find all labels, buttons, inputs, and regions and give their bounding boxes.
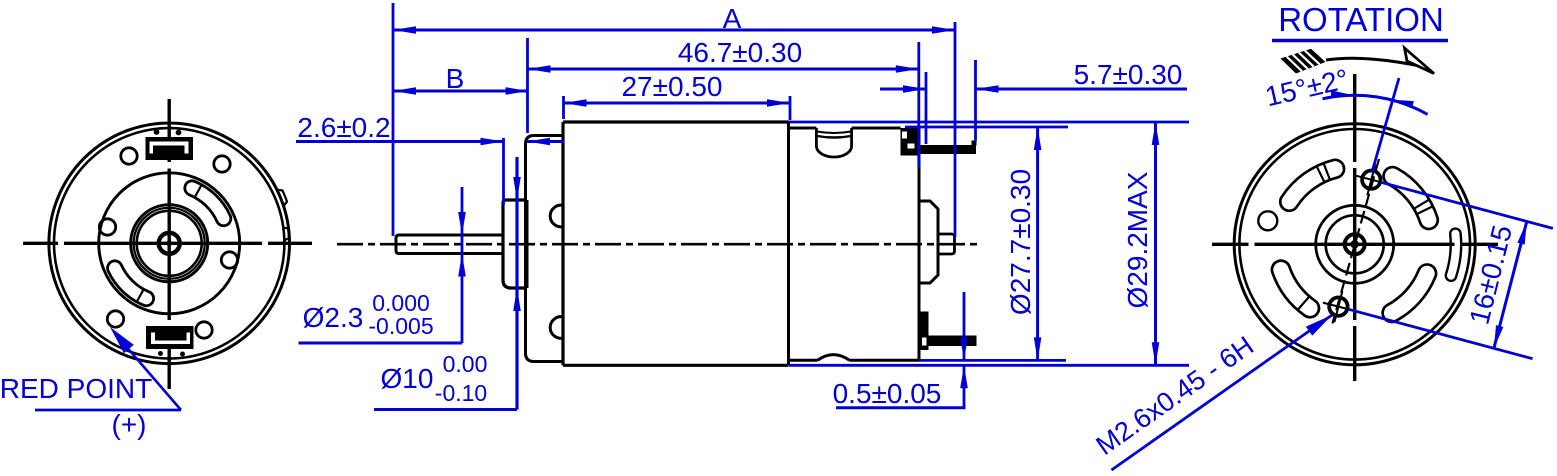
svg-text:Ø10: Ø10	[381, 363, 434, 394]
svg-text:5.7±0.30: 5.7±0.30	[1074, 59, 1183, 90]
svg-text:ROTATION: ROTATION	[1278, 1, 1444, 38]
svg-text:(+): (+)	[112, 409, 147, 440]
svg-text:27±0.50: 27±0.50	[621, 71, 722, 102]
svg-text:-0.10: -0.10	[435, 380, 487, 406]
svg-text:RED POINT: RED POINT	[0, 373, 152, 404]
svg-text:Ø2.3: Ø2.3	[303, 302, 364, 333]
svg-text:-0.005: -0.005	[368, 313, 433, 339]
svg-text:0.5±0.05: 0.5±0.05	[833, 378, 942, 409]
svg-text:0.00: 0.00	[443, 351, 488, 377]
svg-text:B: B	[446, 63, 465, 94]
svg-text:2.6±0.2: 2.6±0.2	[297, 112, 390, 143]
svg-text:Ø27.7±0.30: Ø27.7±0.30	[1005, 169, 1036, 315]
svg-text:46.7±0.30: 46.7±0.30	[678, 37, 802, 68]
svg-text:Ø29.2MAX: Ø29.2MAX	[1122, 171, 1153, 308]
